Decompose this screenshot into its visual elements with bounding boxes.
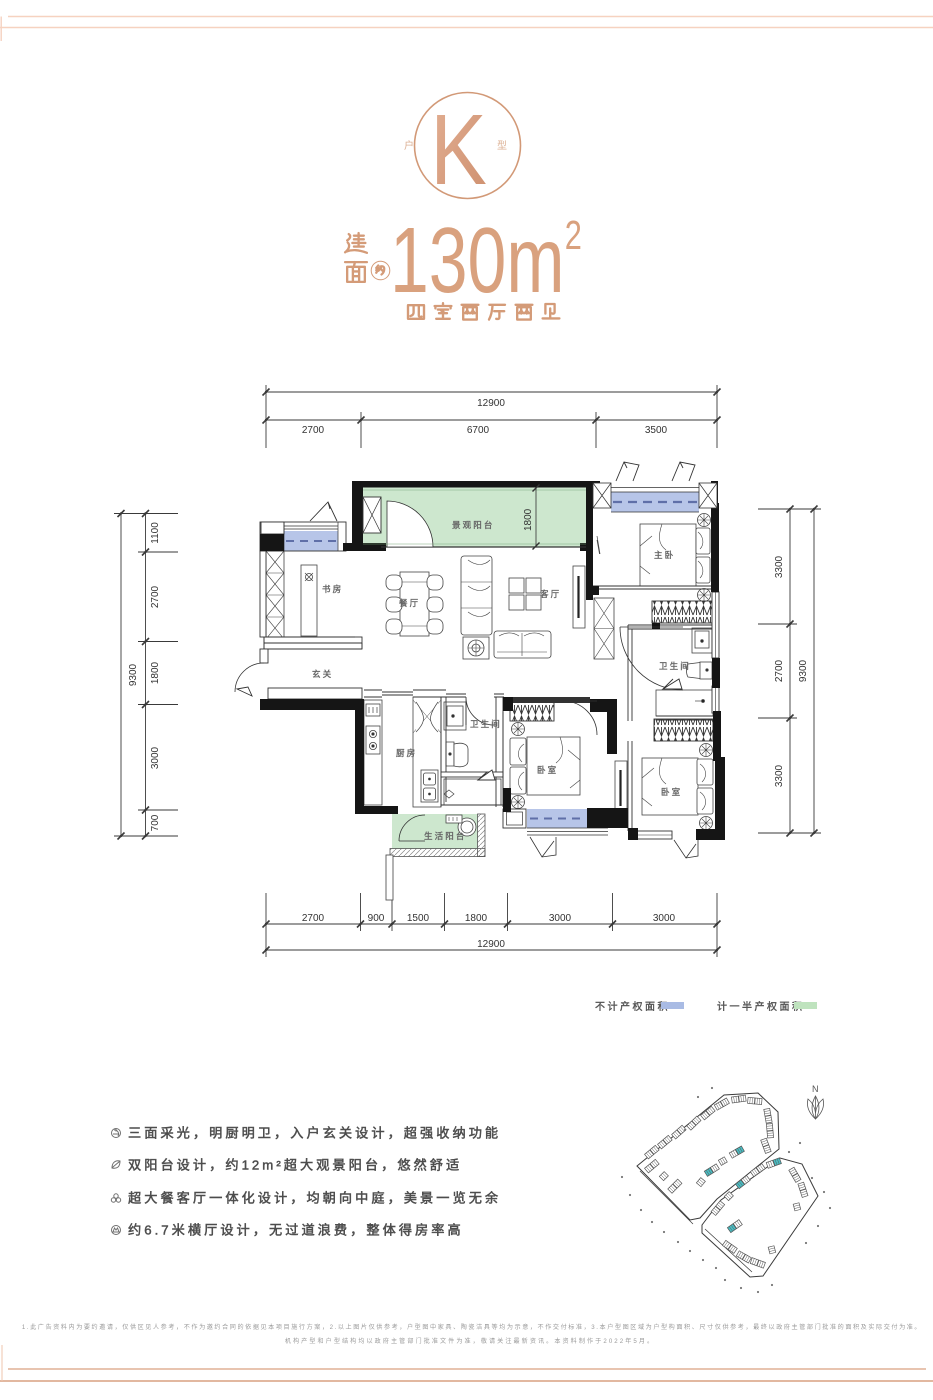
svg-text:3000: 3000 xyxy=(150,746,161,769)
svg-text:K: K xyxy=(430,93,487,205)
svg-text:卫生间: 卫生间 xyxy=(470,719,502,729)
svg-text:户: 户 xyxy=(404,139,414,152)
svg-text:餐厅: 餐厅 xyxy=(399,598,420,608)
svg-text:9300: 9300 xyxy=(128,663,139,686)
svg-text:主卧: 主卧 xyxy=(654,550,675,560)
svg-text:1800: 1800 xyxy=(465,913,488,924)
svg-text:三面采光，明厨明卫，入户玄关设计，超强收纳功能: 三面采光，明厨明卫，入户玄关设计，超强收纳功能 xyxy=(128,1125,501,1141)
svg-text:700: 700 xyxy=(150,814,161,831)
svg-text:机构产型和户型结构均以政府主管部门批准文件为准，敬请关注最新: 机构产型和户型结构均以政府主管部门批准文件为准，敬请关注最新资讯。本资料制作于2… xyxy=(285,1337,655,1345)
svg-text:约6.7米横厅设计，无过道浪费，整体得房率高: 约6.7米横厅设计，无过道浪费，整体得房率高 xyxy=(128,1222,464,1238)
svg-text:不计产权面积: 不计产权面积 xyxy=(595,1000,670,1013)
svg-text:1800: 1800 xyxy=(150,661,161,684)
svg-text:3000: 3000 xyxy=(653,913,676,924)
svg-text:景观阳台: 景观阳台 xyxy=(452,520,495,530)
svg-text:2700: 2700 xyxy=(774,659,785,682)
svg-text:3300: 3300 xyxy=(774,555,785,578)
svg-text:900: 900 xyxy=(368,913,385,924)
svg-text:9300: 9300 xyxy=(798,659,809,682)
svg-text:2700: 2700 xyxy=(302,425,325,436)
svg-text:客厅: 客厅 xyxy=(540,589,561,599)
svg-text:12900: 12900 xyxy=(477,398,505,409)
svg-text:12900: 12900 xyxy=(477,939,505,950)
svg-text:2700: 2700 xyxy=(302,913,325,924)
svg-text:6700: 6700 xyxy=(467,425,490,436)
svg-text:2: 2 xyxy=(565,212,582,258)
svg-text:计一半产权面积: 计一半产权面积 xyxy=(717,1000,805,1013)
svg-text:厨房: 厨房 xyxy=(396,748,417,758)
svg-text:卧室: 卧室 xyxy=(537,765,558,775)
svg-text:生活阳台: 生活阳台 xyxy=(424,831,467,841)
svg-text:2700: 2700 xyxy=(150,585,161,608)
svg-text:3500: 3500 xyxy=(645,425,668,436)
svg-text:3000: 3000 xyxy=(549,913,572,924)
svg-text:书房: 书房 xyxy=(322,584,343,594)
svg-text:卫生间: 卫生间 xyxy=(659,661,691,671)
svg-text:1800: 1800 xyxy=(523,508,534,531)
svg-text:玄关: 玄关 xyxy=(312,669,333,679)
svg-text:3300: 3300 xyxy=(774,764,785,787)
svg-text:超大餐客厅一体化设计，均朝向中庭，美景一览无余: 超大餐客厅一体化设计，均朝向中庭，美景一览无余 xyxy=(128,1190,501,1206)
svg-text:型: 型 xyxy=(497,139,507,152)
svg-text:1.此广告资料内为要约邀请，仅供区见人参考，不作为邀约合同的: 1.此广告资料内为要约邀请，仅供区见人参考，不作为邀约合同的依据见本项目施行方案… xyxy=(22,1323,922,1331)
svg-text:130m: 130m xyxy=(390,209,564,312)
svg-text:双阳台设计，约12m²超大观景阳台，悠然舒适: 双阳台设计，约12m²超大观景阳台，悠然舒适 xyxy=(128,1157,462,1173)
svg-text:卧室: 卧室 xyxy=(661,787,682,797)
svg-text:1500: 1500 xyxy=(407,913,430,924)
svg-text:1100: 1100 xyxy=(150,522,161,544)
svg-text:N: N xyxy=(812,1084,819,1094)
